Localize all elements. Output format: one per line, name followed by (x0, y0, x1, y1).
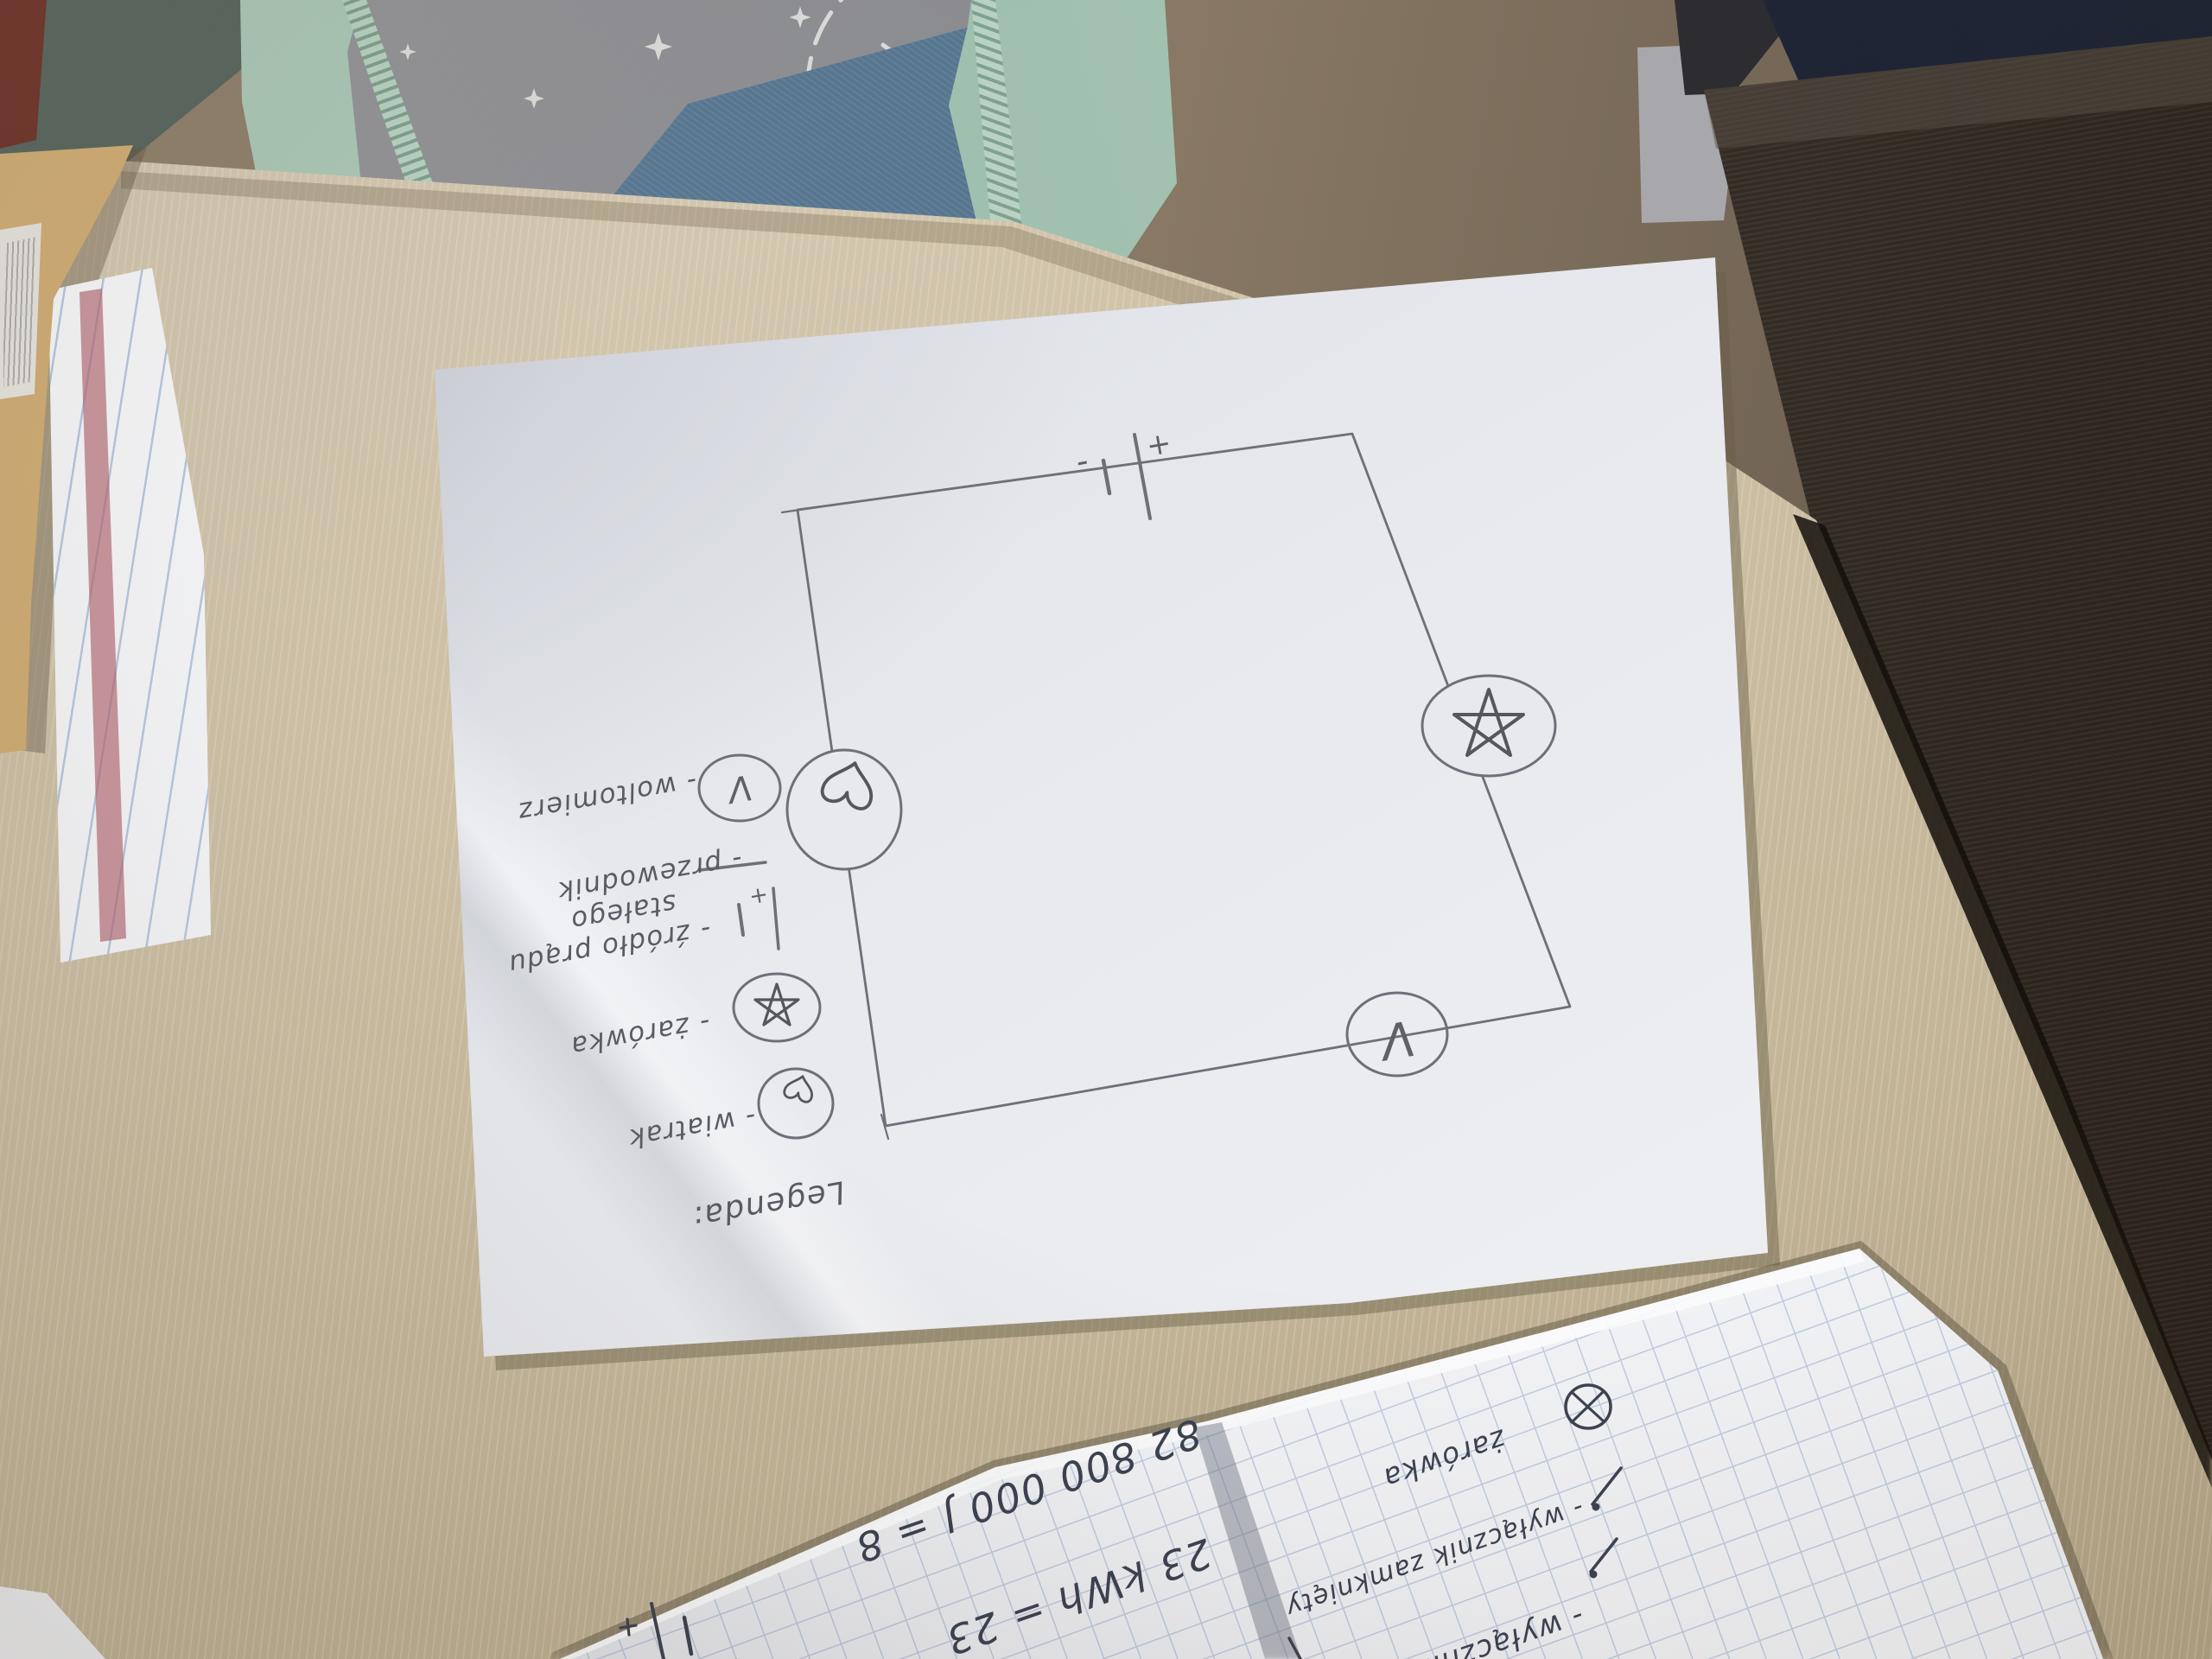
switch-symbol-1-line (1592, 1468, 1621, 1504)
bulb-symbol-cross (1572, 1392, 1604, 1422)
switch-symbol-1-dot (1592, 1503, 1600, 1511)
battery-sketch-long-bar (652, 1604, 664, 1659)
classroom-desk-photo: + - V V + - woltomierz - przewodnik - źr… (0, 0, 2212, 1659)
switch-symbol-2-line (1591, 1539, 1617, 1572)
battery-sketch-short-bar (684, 1618, 691, 1654)
pen-notebook-marks (0, 0, 2212, 1659)
battery-sketch-plus (620, 1619, 636, 1635)
stray-pen-mark (1289, 1638, 1300, 1659)
switch-symbol-2-dot (1590, 1571, 1598, 1579)
